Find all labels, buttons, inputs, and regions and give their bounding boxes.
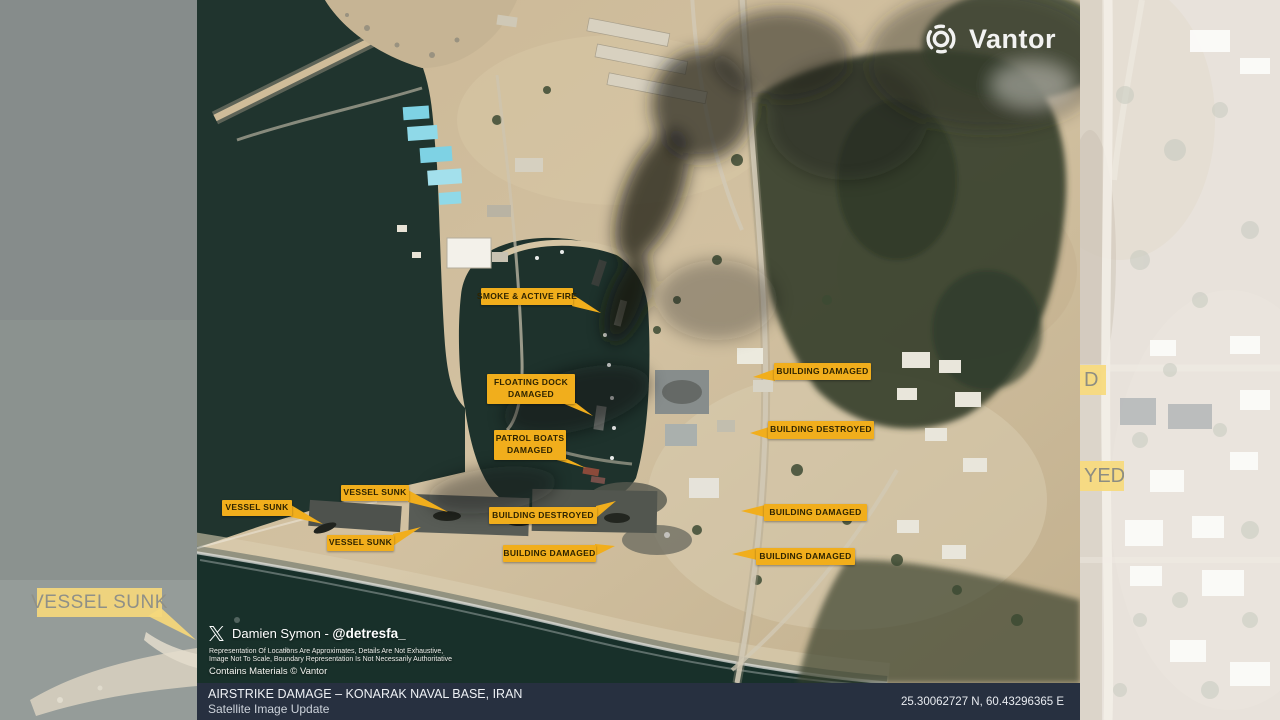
label-text-line: BUILDING DAMAGED — [776, 366, 868, 378]
caption-subtitle: Satellite Image Update — [208, 702, 522, 718]
faded-vessel-sunk-text: VESSEL SUNK — [31, 592, 168, 614]
label-building-destroyed: BUILDING DESTROYED — [489, 507, 597, 524]
faded-vessel-sunk-label: VESSEL SUNK — [37, 588, 162, 617]
label-patrol-boats-damaged: PATROL BOATSDAMAGED — [494, 430, 566, 460]
label-text-line: SMOKE & ACTIVE FIRE — [477, 291, 577, 303]
label-text-line: BUILDING DAMAGED — [503, 548, 595, 560]
label-text-line: BUILDING DESTROYED — [770, 424, 872, 436]
label-building-damaged: BUILDING DAMAGED — [764, 504, 867, 521]
label-building-damaged: BUILDING DAMAGED — [756, 548, 855, 565]
caption-title: AIRSTRIKE DAMAGE – KONARAK NAVAL BASE, I… — [208, 686, 522, 702]
label-vessel-sunk: VESSEL SUNK — [222, 500, 292, 516]
label-building-destroyed: BUILDING DESTROYED — [768, 421, 874, 439]
materials-credit: Contains Materials © Vantor — [209, 666, 452, 677]
caption-bar: AIRSTRIKE DAMAGE – KONARAK NAVAL BASE, I… — [197, 683, 1080, 720]
label-text-line: FLOATING DOCK — [494, 377, 568, 389]
faded-partial-label-top-text: D — [1084, 369, 1098, 392]
label-vessel-sunk: VESSEL SUNK — [341, 485, 409, 501]
label-text-line: VESSEL SUNK — [343, 487, 406, 499]
author-name: Damien Symon - @detresfa_ — [232, 626, 406, 641]
label-text-line: BUILDING DAMAGED — [769, 507, 861, 519]
vantor-logo: Vantor — [922, 20, 1056, 58]
faded-partial-label-top: D — [1080, 365, 1106, 395]
label-smoke-active-fire: SMOKE & ACTIVE FIRE — [481, 288, 573, 305]
blurred-margin-right: D YED — [1080, 0, 1280, 720]
coordinates-readout: 25.30062727 N, 60.43296365 E — [901, 696, 1064, 708]
label-text-line: DAMAGED — [508, 389, 554, 401]
label-text-line: BUILDING DAMAGED — [759, 551, 851, 563]
attribution-block: Damien Symon - @detresfa_ Representation… — [209, 624, 452, 677]
label-text-line: BUILDING DESTROYED — [492, 510, 594, 522]
label-building-damaged: BUILDING DAMAGED — [503, 545, 596, 562]
label-floating-dock-damaged: FLOATING DOCKDAMAGED — [487, 374, 575, 404]
vantor-aperture-icon — [922, 20, 960, 58]
author-handle: @detresfa_ — [332, 626, 405, 641]
caption-text: AIRSTRIKE DAMAGE – KONARAK NAVAL BASE, I… — [208, 686, 522, 718]
x-twitter-icon — [209, 626, 224, 641]
label-text-line: VESSEL SUNK — [329, 537, 392, 549]
washed-satellite-background — [1080, 0, 1280, 720]
satellite-image-panel: SMOKE & ACTIVE FIREFLOATING DOCKDAMAGEDP… — [197, 0, 1080, 720]
vantor-wordmark: Vantor — [969, 24, 1056, 55]
label-text-line: PATROL BOATS — [496, 433, 565, 445]
graphic-canvas: VESSEL SUNK — [0, 0, 1280, 720]
blurred-margin-left: VESSEL SUNK — [0, 0, 197, 720]
label-vessel-sunk: VESSEL SUNK — [327, 535, 394, 551]
annotation-layer: SMOKE & ACTIVE FIREFLOATING DOCKDAMAGEDP… — [197, 0, 1080, 683]
label-building-damaged: BUILDING DAMAGED — [774, 363, 871, 380]
faded-partial-label-bottom-text: YED — [1084, 465, 1124, 488]
disclaimer-text: Representation Of Locations Are Approxim… — [209, 648, 452, 665]
label-text-line: DAMAGED — [507, 445, 553, 457]
faded-partial-label-bottom: YED — [1080, 461, 1124, 491]
label-text-line: VESSEL SUNK — [225, 502, 288, 514]
